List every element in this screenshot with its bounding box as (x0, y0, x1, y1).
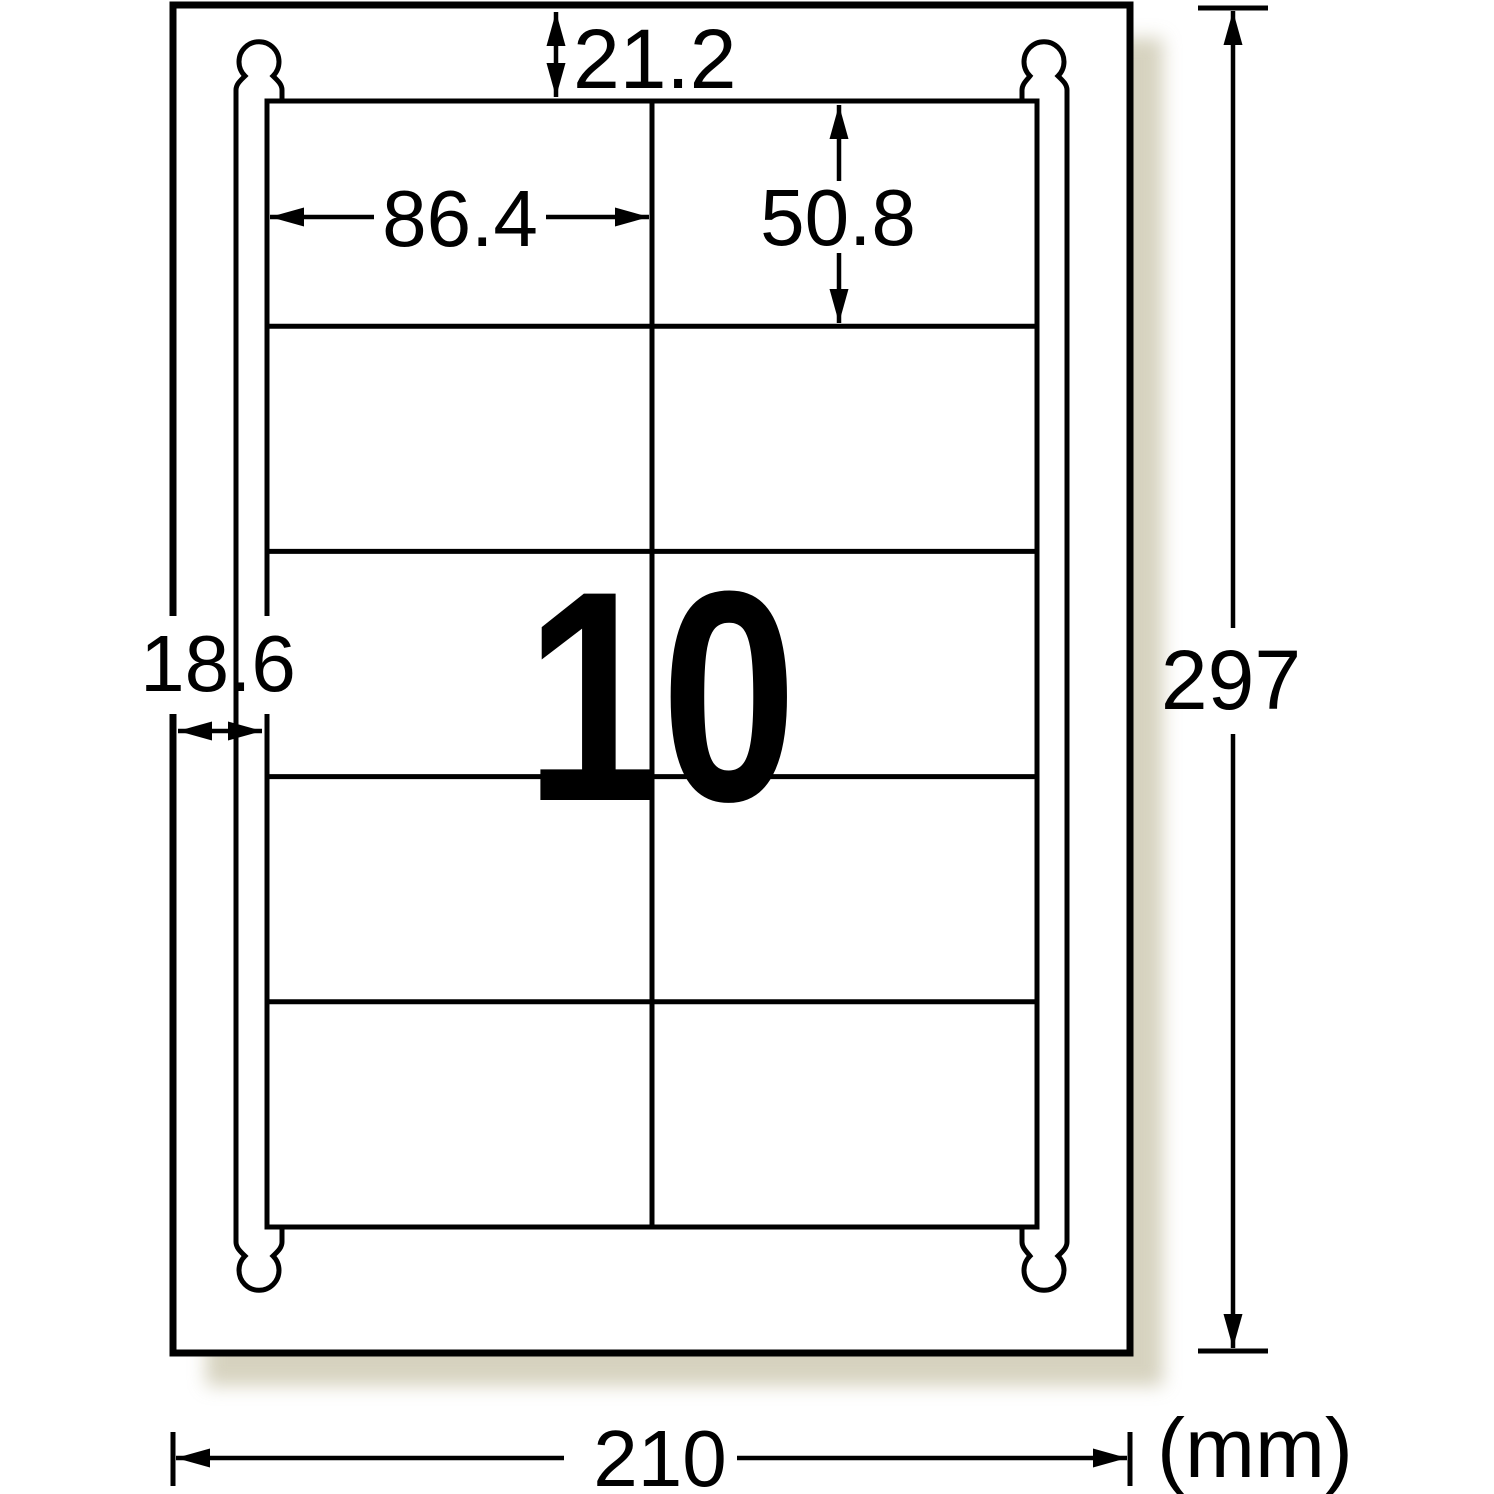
dim-top-margin-value: 21.2 (573, 12, 737, 106)
dim-sheet-height-value: 297 (1161, 633, 1301, 727)
dim-side-margin-value: 18.6 (140, 619, 296, 708)
unit-label: (mm) (1157, 1401, 1353, 1494)
dim-label-width-value: 86.4 (382, 174, 538, 263)
diagram-canvas: 10 21.2 86.4 50.8 18.6 297 210 (0, 0, 1494, 1494)
label-sheet-diagram: 10 21.2 86.4 50.8 18.6 297 210 (0, 0, 1494, 1494)
dim-sheet-width-value: 210 (593, 1414, 726, 1494)
dim-side-margin: 18.6 (137, 616, 300, 731)
dim-sheet-width: 210 (173, 1414, 1130, 1494)
dim-top-margin: 21.2 (556, 12, 737, 106)
labels-per-sheet-count: 10 (525, 528, 797, 864)
dim-label-height-value: 50.8 (760, 173, 916, 262)
dim-sheet-height: 297 (1161, 8, 1301, 1351)
